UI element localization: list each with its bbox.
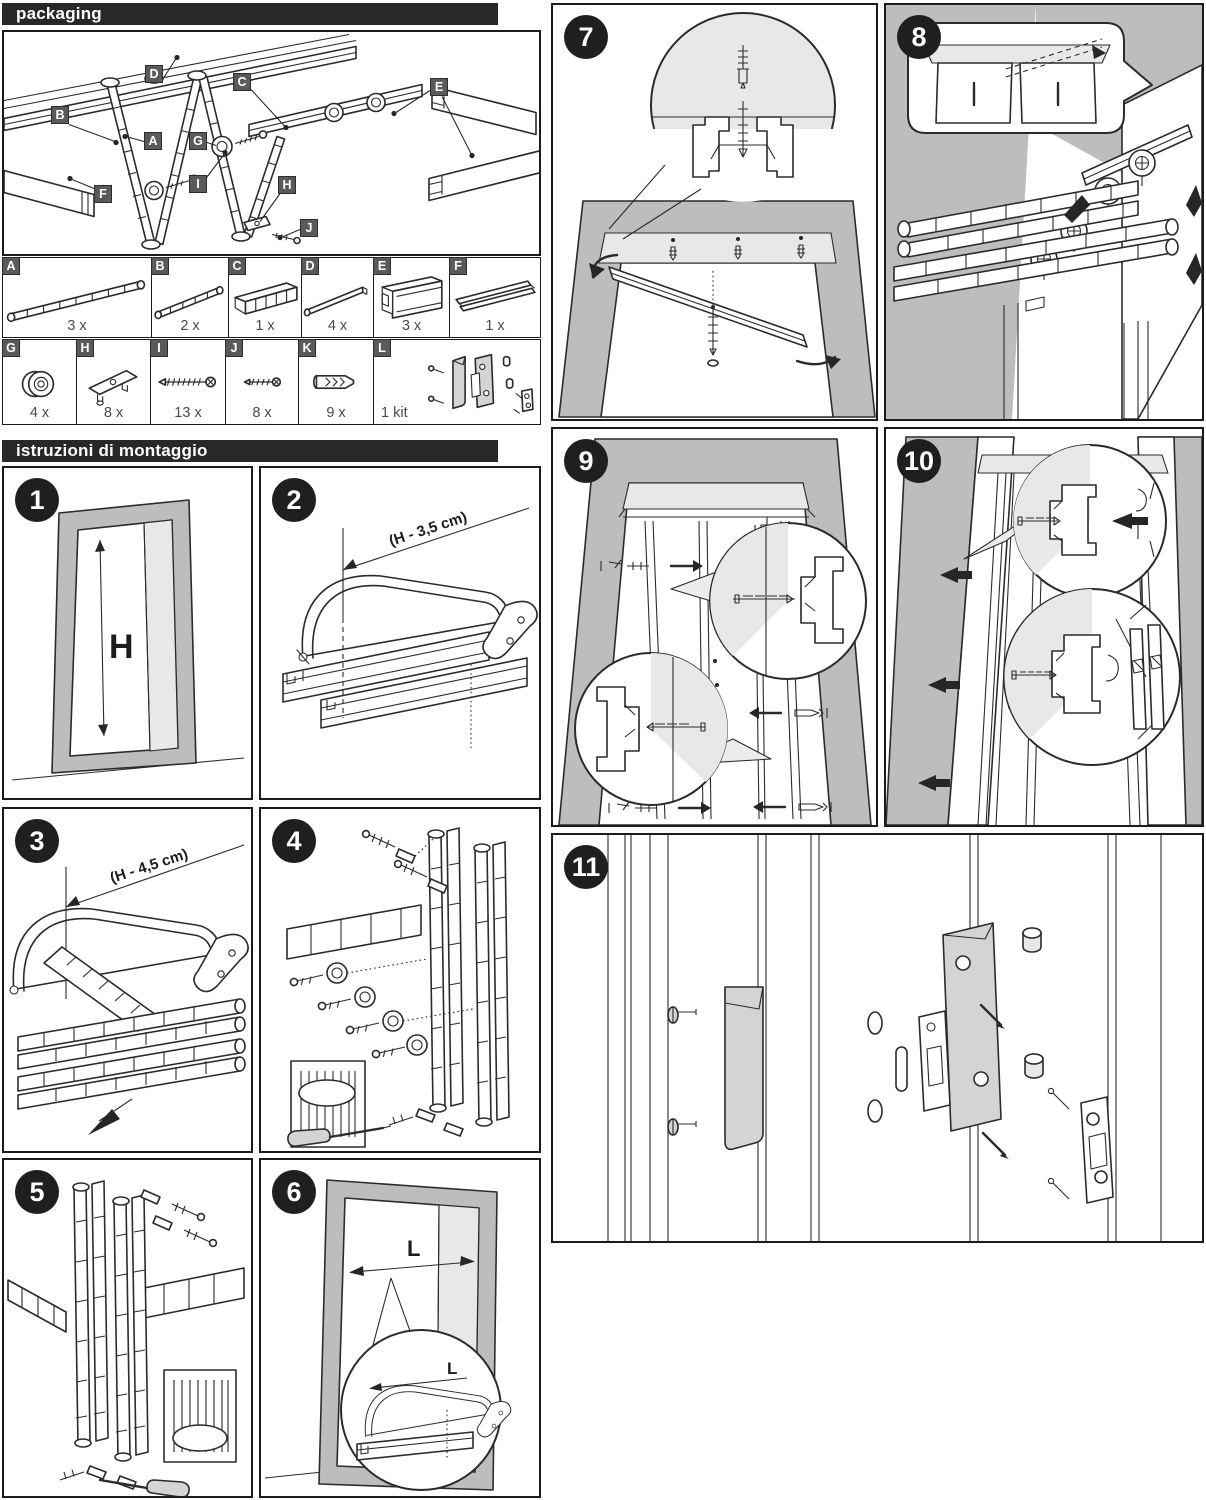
step-2-panel: 2 (H - 3,5 cm) <box>259 466 541 800</box>
callout-B: B <box>51 106 69 124</box>
part-count-D: 4 x <box>302 318 373 334</box>
part-cell-E: E 3 x <box>373 257 450 338</box>
horizontal-panel <box>287 905 421 959</box>
part-cell-D: D 4 x <box>301 257 374 338</box>
part-count-K: 9 x <box>299 405 373 421</box>
step-9-badge: 9 <box>564 439 608 483</box>
top-screws <box>141 1190 216 1246</box>
step-4-badge: 4 <box>272 819 316 863</box>
part-cell-I: I 13 x <box>150 339 226 425</box>
part-cell-J: J 8 x <box>225 339 299 425</box>
bottom-screws-screwdriver <box>60 1466 189 1496</box>
part-letter-E: E <box>373 257 391 275</box>
tilted-panel <box>8 1280 66 1332</box>
part-count-G: 4 x <box>3 405 76 421</box>
step-11-panel: 11 <box>551 833 1204 1243</box>
part-count-E: 3 x <box>374 318 449 334</box>
part-letter-H: H <box>76 339 94 357</box>
part-count-J: 8 x <box>226 405 298 421</box>
callout-D: D <box>145 65 163 83</box>
instructions-header: istruzioni di montaggio <box>2 440 498 462</box>
step-8-illustration <box>886 5 1202 419</box>
latch-plate <box>919 923 1001 1131</box>
step-6-panel: 6 L L <box>259 1158 541 1498</box>
tilt-in-inset <box>908 23 1152 133</box>
vertical-slat-group <box>428 828 509 1126</box>
part-cell-C: C 1 x <box>228 257 302 338</box>
callout-E: E <box>430 78 448 96</box>
kit-handle <box>453 357 465 409</box>
part-letter-A: A <box>2 257 20 275</box>
instructions-title: istruzioni di montaggio <box>16 441 208 460</box>
cut-dim-label: (H - 3,5 cm) <box>387 509 469 550</box>
step-4-panel: 4 <box>259 807 541 1153</box>
part-count-L: 1 kit <box>374 405 540 421</box>
packaging-title: packaging <box>16 4 102 23</box>
door-edge-lines <box>608 835 1161 1241</box>
striker-plate <box>1081 1097 1113 1203</box>
step-9-panel: 9 <box>551 427 878 827</box>
part-count-I: 13 x <box>151 405 225 421</box>
height-label: H <box>109 628 134 666</box>
kit-screws <box>429 366 444 403</box>
callout-J: J <box>300 219 318 237</box>
step-5-badge: 5 <box>15 1170 59 1214</box>
part-cell-B: B 2 x <box>151 257 229 338</box>
part-count-F: 1 x <box>450 318 540 334</box>
step-7-panel: 7 <box>551 3 878 421</box>
step-8-badge: 8 <box>897 15 941 59</box>
step-6-badge: 6 <box>272 1170 316 1214</box>
instruction-sheet: packaging <box>0 0 1206 1500</box>
step-11-illustration <box>553 835 1202 1241</box>
step-10-badge: 10 <box>897 439 941 483</box>
part-letter-I: I <box>150 339 168 357</box>
step-3-panel: 3 (H - 4,5 cm) <box>2 807 253 1153</box>
part-letter-K: K <box>298 339 316 357</box>
step-7-badge: 7 <box>564 15 608 59</box>
packaging-exploded-diagram: A B C D E F G H I J <box>2 30 541 256</box>
roller-screw-set <box>290 959 473 1058</box>
callout-I: I <box>189 175 207 193</box>
callout-A: A <box>144 132 162 150</box>
step-11-badge: 11 <box>564 845 608 889</box>
part-count-B: 2 x <box>152 318 228 334</box>
width-label: L <box>407 1236 420 1261</box>
step-7-illustration <box>553 5 876 419</box>
screwdriver-icon <box>100 1480 189 1496</box>
part-count-C: 1 x <box>229 318 301 334</box>
part-cell-F: F 1 x <box>449 257 541 338</box>
cut-arrow <box>88 1109 120 1135</box>
part-letter-L: L <box>373 339 391 357</box>
handle-screws <box>668 1007 696 1135</box>
callout-F: F <box>94 185 112 203</box>
step-10-panel: 10 <box>884 427 1204 827</box>
step-1-panel: 1 H <box>2 466 253 800</box>
handle <box>725 987 763 1149</box>
part-letter-F: F <box>449 257 467 275</box>
door-inset <box>164 1370 236 1462</box>
part-cell-H: H 8 x <box>76 339 151 425</box>
exploded-view-illustration <box>4 32 539 254</box>
step-9-illustration <box>553 429 876 825</box>
kit-latch-plate <box>471 355 493 408</box>
part-letter-B: B <box>151 257 169 275</box>
step-8-panel: 8 <box>884 3 1204 421</box>
packaging-header: packaging <box>2 3 498 25</box>
step-1-badge: 1 <box>15 478 59 522</box>
inset-width-label: L <box>447 1359 457 1378</box>
callout-G: G <box>189 132 207 150</box>
hacksaw-icon <box>10 909 248 994</box>
lower-hook-inset <box>1004 589 1180 765</box>
door-edge-holes <box>868 1012 907 1122</box>
part-cell-A: A 3 x <box>2 257 152 338</box>
step-5-panel: 5 <box>2 1158 253 1498</box>
step-10-illustration <box>886 429 1202 825</box>
cut-dim-label: (H - 4,5 cm) <box>108 846 190 887</box>
part-letter-C: C <box>228 257 246 275</box>
part-cell-G: G 4 x <box>2 339 77 425</box>
vertical-slat-group <box>73 1181 148 1461</box>
part-count-A: 3 x <box>3 318 151 334</box>
latch-pins <box>1023 928 1043 1078</box>
step-2-badge: 2 <box>272 478 316 522</box>
part-letter-G: G <box>2 339 20 357</box>
cut-dimension: (H - 3,5 cm) <box>343 508 529 618</box>
part-letter-D: D <box>301 257 319 275</box>
step-3-badge: 3 <box>15 819 59 863</box>
part-count-H: 8 x <box>77 405 150 421</box>
callout-C: C <box>233 73 251 91</box>
bracket-screw-assembly <box>244 217 300 244</box>
callout-H: H <box>278 176 296 194</box>
part-cell-L: L <box>373 339 541 425</box>
part-letter-J: J <box>225 339 243 357</box>
part-cell-K: K 9 x <box>298 339 374 425</box>
horizontal-panel <box>144 1268 244 1318</box>
